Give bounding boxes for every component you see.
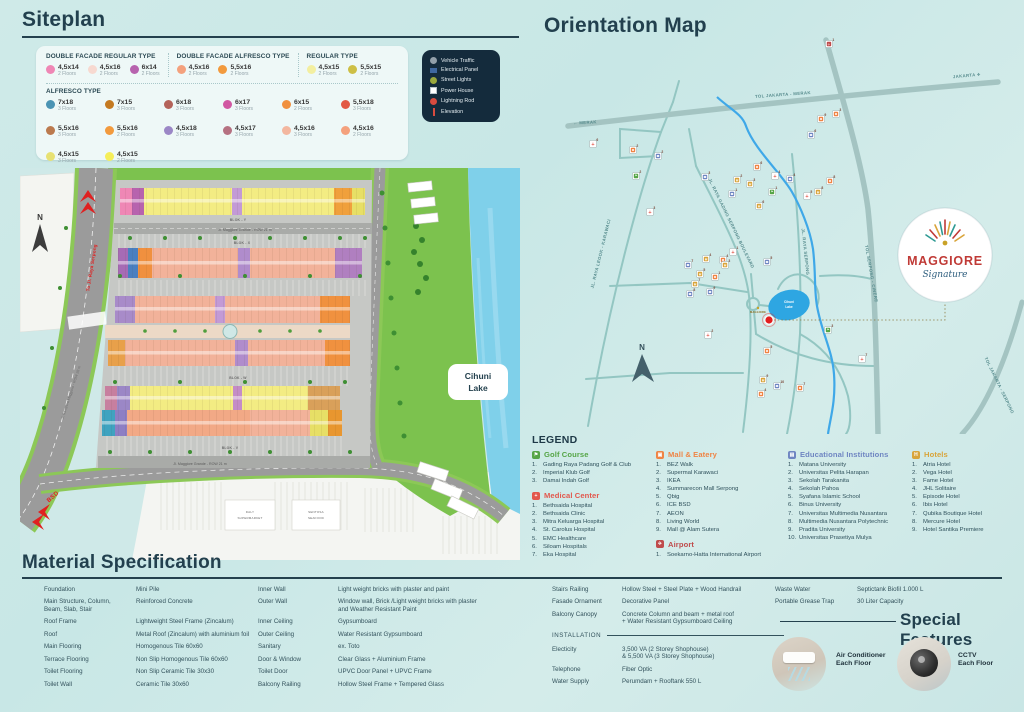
building-row-blok-w-lower <box>108 340 350 366</box>
material-row: Main FlooringHomogenous Tile 60x60 <box>44 643 256 650</box>
map-marker-medical: +7 <box>858 353 867 363</box>
education-icon: ▤ <box>788 451 796 459</box>
map-marker-hotel: H2 <box>733 174 742 184</box>
legend-item: Sekolah Pahoa <box>788 486 910 492</box>
material-col-1: FoundationMini PileMain Structure, Colum… <box>44 586 256 693</box>
type-color-dot <box>130 65 139 74</box>
blok-y-label: BLOK - Y <box>230 218 247 222</box>
material-row: Toilet DoorUPVC Door Panel + UPVC Frame <box>258 668 526 675</box>
facade-type-item: 6x142 Floors <box>130 64 160 77</box>
svg-text:1: 1 <box>775 186 777 190</box>
map-marker-edu: 2 <box>654 150 663 160</box>
siteplan-map: N <box>20 168 520 560</box>
map-marker-hotel: H4 <box>702 253 711 263</box>
siteplan-map-legend: Vehicle TrafficElectrical PanelStreet Li… <box>422 50 500 122</box>
material-row: Terrace FlooringNon Slip Homogenous Tile… <box>44 656 256 663</box>
svg-text:6: 6 <box>762 200 764 204</box>
material-row: Roof FrameLightweight Steel Frame (Zinca… <box>44 618 256 625</box>
svg-text:5: 5 <box>770 345 772 349</box>
siteplan-title: Siteplan <box>22 8 105 32</box>
facade-type-item: 7x183 Floors <box>46 99 96 112</box>
cctv-photo <box>897 637 951 691</box>
map-marker-edu: 1 <box>728 188 737 198</box>
type-color-dot <box>105 152 114 161</box>
type-color-dot <box>164 126 173 135</box>
facade-type-item: 7x153 Floors <box>105 99 155 112</box>
legend-item: Ibis Hotel <box>912 502 1022 508</box>
map-marker-mall: 6 <box>753 161 762 171</box>
map-lake-label-2: Lake <box>785 305 792 309</box>
special-rule <box>780 621 896 622</box>
legend-item: AEON <box>656 511 786 517</box>
legend-item: Siloam Hospitals <box>532 544 654 550</box>
legend-item: Atria Hotel <box>912 462 1022 468</box>
map-marker-mall: 5 <box>763 345 772 355</box>
legend-item: St. Carolus Hospital <box>532 527 654 533</box>
svg-text:5: 5 <box>810 190 812 194</box>
legend-item: Mitra Keluarga Hospital <box>532 519 654 525</box>
svg-text:2: 2 <box>711 329 713 333</box>
svg-text:7: 7 <box>865 353 867 357</box>
svg-text:5: 5 <box>770 256 772 260</box>
map-marker-medical: +3 <box>646 206 655 216</box>
svg-text:H: H <box>758 204 761 208</box>
logo-name: MAGGIORE <box>907 254 983 268</box>
roads <box>586 81 875 434</box>
svg-text:2: 2 <box>639 170 641 174</box>
legend-item: EMC Healthcare <box>532 536 654 542</box>
svg-text:H: H <box>724 263 727 267</box>
lake-label-box <box>448 364 508 400</box>
map-marker-mall: 3 <box>832 108 841 118</box>
svg-text:7: 7 <box>691 259 693 263</box>
svg-text:6: 6 <box>760 161 762 165</box>
svg-text:H: H <box>762 378 765 382</box>
svg-text:4: 4 <box>764 388 766 392</box>
map-legend-icon <box>430 87 437 94</box>
legend-item: BEZ Walk <box>656 462 786 468</box>
maggiore-logo: MAGGIORE Signature <box>898 208 992 302</box>
type-color-dot <box>348 65 357 74</box>
legend-item: Bethsaida Clinic <box>532 511 654 517</box>
legend-item: Multimedia Nusantara Polytechnic <box>788 519 910 525</box>
type-color-dot <box>105 126 114 135</box>
svg-text:1: 1 <box>832 38 834 42</box>
map-marker-hotel: H5 <box>696 268 705 278</box>
svg-text:+: + <box>648 210 651 216</box>
material-row: Inner CeilingGypsumboard <box>258 618 526 625</box>
map-legend-icon <box>433 108 435 116</box>
material-row: Main Structure, Column, Beam, Slab, Stai… <box>44 598 256 613</box>
material-row: Balcony CanopyConcrete Column and beam +… <box>552 611 794 626</box>
map-legend-row: Elevation <box>430 108 492 116</box>
type-color-dot <box>46 126 55 135</box>
type-color-dot <box>46 65 55 74</box>
map-marker-mall: 7 <box>796 382 805 392</box>
legend-item: Mall @ Alam Sutera <box>656 527 786 533</box>
type-color-dot <box>46 152 55 161</box>
installation-header: INSTALLATION <box>552 632 784 639</box>
map-marker-edu: 9 <box>706 286 715 296</box>
material-row: FoundationMini Pile <box>44 586 256 593</box>
legend-item: Binus University <box>788 502 910 508</box>
svg-text:9: 9 <box>713 286 715 290</box>
map-marker-hotel: H9 <box>759 374 768 384</box>
material-title: Material Specification <box>22 552 222 574</box>
map-marker-edu: 7 <box>684 259 693 269</box>
svg-text:3: 3 <box>753 178 755 182</box>
material-row: TelephoneFiber Optic <box>552 666 794 673</box>
svg-text:4: 4 <box>726 254 728 258</box>
material-row: Sanitaryex. Toto <box>258 643 526 650</box>
svg-text:H: H <box>699 272 702 276</box>
supermarket-label-1: DALY <box>246 510 254 514</box>
type-color-dot <box>105 100 114 109</box>
material-row: Door & WindowClear Glass + Aluminium Fra… <box>258 656 526 663</box>
type-color-dot <box>282 126 291 135</box>
poi-legend: LEGEND ⚑Golf Course Gading Raya Padang G… <box>530 434 1024 564</box>
facade-type-item: 4,5x183 Floors <box>164 125 214 138</box>
legend-item: Damai Indah Golf <box>532 478 654 484</box>
material-row: Outer WallWindow wall, Brick /Light weig… <box>258 598 526 613</box>
legend-item: Fame Hotel <box>912 478 1022 484</box>
type-color-dot <box>307 65 316 74</box>
legend-item: ICE BSD <box>656 502 786 508</box>
map-marker-golf: 3 <box>824 324 833 334</box>
svg-text:6: 6 <box>814 129 816 133</box>
legend-section-airport: ✈Airport Soekarno-Hatta International Ai… <box>656 540 786 558</box>
svg-text:9: 9 <box>824 113 826 117</box>
material-row: Toilet FlooringNon Slip Ceramic Tile 30x… <box>44 668 256 675</box>
legend-section-education: ▤Educational Institutions Matana Univers… <box>788 450 910 541</box>
logo-tagline: Signature <box>922 270 967 280</box>
facade-type-item: 6x173 Floors <box>223 99 273 112</box>
svg-text:✈: ✈ <box>828 42 831 46</box>
street-bottom-label: Jl. Maggiore Grande - ROW 21 m <box>173 462 227 466</box>
map-marker-hotel: H6 <box>755 200 764 210</box>
svg-text:H: H <box>817 190 820 194</box>
seafood-label-2: SEAFOOD <box>308 516 325 520</box>
svg-text:1: 1 <box>736 246 738 250</box>
map-marker-edu: 6 <box>807 129 816 139</box>
map-compass-n: N <box>639 343 645 352</box>
legend-item: Summarecon Mall Serpong <box>656 486 786 492</box>
map-legend-row: Power House <box>430 87 492 94</box>
svg-text:8: 8 <box>833 175 835 179</box>
facade-group-title: DOUBLE FACADE ALFRESCO TYPE <box>177 53 290 60</box>
medical-icon: + <box>532 492 540 500</box>
svg-text:2: 2 <box>740 174 742 178</box>
legend-item: Supermal Karawaci <box>656 470 786 476</box>
legend-item: Vega Hotel <box>912 470 1022 476</box>
svg-text:+: + <box>706 333 709 339</box>
legend-item: Living World <box>656 519 786 525</box>
svg-text:H: H <box>694 282 697 286</box>
site-marker <box>765 316 773 324</box>
facade-type-item: 4,5x162 Floors <box>177 64 210 77</box>
road-label: JL. RAYA LEGOK - KARAWACI <box>590 219 612 289</box>
svg-text:7: 7 <box>698 278 700 282</box>
svg-text:1: 1 <box>735 188 737 192</box>
facade-group-title: DOUBLE FACADE REGULAR TYPE <box>46 53 160 60</box>
blok-w-label: BLOK - W <box>229 376 247 380</box>
legend-item: Hotel Santika Premiere <box>912 527 1022 533</box>
map-marker-hotel: H7 <box>691 278 700 288</box>
facade-type-item: 4,5x162 Floors <box>341 125 391 138</box>
ac-label: Air Conditioner Each Floor <box>836 652 885 669</box>
material-row: Fasade OrnamentDecorative Panel <box>552 598 794 605</box>
svg-text:+: + <box>860 357 863 363</box>
street-top-label: Jl. Maggiore Grande - ROW 21 m <box>218 228 272 232</box>
map-compass-arrow <box>632 354 654 382</box>
legend-item: IKEA <box>656 478 786 484</box>
type-color-dot <box>341 100 350 109</box>
legend-item: Soekarno-Hatta International Airport <box>656 552 786 558</box>
svg-text:+: + <box>731 250 734 256</box>
material-col-3b: Electicity3,500 VA (2 Storey Shophouse) … <box>552 646 794 691</box>
ac-photo <box>772 637 826 691</box>
material-row: Toilet WallCeramic Tile 30x60 <box>44 681 256 688</box>
type-color-dot <box>282 100 291 109</box>
type-color-dot <box>46 100 55 109</box>
type-color-dot <box>88 65 97 74</box>
legend-item: Qbig <box>656 494 786 500</box>
svg-text:8: 8 <box>821 186 823 190</box>
svg-text:1: 1 <box>718 271 720 275</box>
legend-item: Syafana Islamic School <box>788 494 910 500</box>
lake-label-2: Lake <box>468 383 488 393</box>
legend-item: Pradita University <box>788 527 910 533</box>
svg-text:10: 10 <box>780 380 784 384</box>
svg-text:8: 8 <box>693 288 695 292</box>
hotel-icon: H <box>912 451 920 459</box>
facade-type-item: 5,5x183 Floors <box>341 99 391 112</box>
map-marker-golf: 2 <box>632 170 641 180</box>
divider <box>298 53 299 77</box>
supermarket-label-2: SUPERMARKET <box>237 516 262 520</box>
svg-text:4: 4 <box>709 253 711 257</box>
divider <box>46 83 398 84</box>
svg-text:+: + <box>591 142 594 148</box>
siteplan-compass-n: N <box>37 213 43 222</box>
site-mini-crest <box>757 307 759 309</box>
facade-type-item: 4,5x163 Floors <box>282 125 332 138</box>
legend-item: Bethsaida Hospital <box>532 503 654 509</box>
map-legend-icon <box>430 98 437 105</box>
material-title-rule <box>22 577 1002 579</box>
material-row: Electicity3,500 VA (2 Storey Shophouse) … <box>552 646 794 661</box>
legend-item: Universitas Multimedia Nusantara <box>788 511 910 517</box>
map-marker-mall: 1 <box>711 271 720 281</box>
svg-text:7: 7 <box>803 382 805 386</box>
legend-item: Universitas Prasetiya Mulya <box>788 535 910 541</box>
blok-v-label: BLOK - V <box>222 446 239 450</box>
facade-type-item: 5,5x152 Floors <box>348 64 381 77</box>
svg-text:H: H <box>705 257 708 261</box>
facade-type-item: 4,5x152 Floors <box>307 64 340 77</box>
svg-text:6: 6 <box>596 138 598 142</box>
legend-item: Gading Raya Padang Golf & Club <box>532 462 654 468</box>
svg-text:3: 3 <box>831 324 833 328</box>
material-row: Outer CeilingWater Resistant Gypsumboard <box>258 631 526 638</box>
legend-item: JHL Solitaire <box>912 486 1022 492</box>
legend-item: Sekolah Tarakanita <box>788 478 910 484</box>
building-row-blok-v-lower <box>102 410 342 436</box>
map-marker-hotel: H3 <box>746 178 755 188</box>
type-color-dot <box>223 100 232 109</box>
map-marker-hotel: H8 <box>814 186 823 196</box>
map-legend-row: Street Lights <box>430 77 492 84</box>
svg-text:4: 4 <box>793 173 795 177</box>
map-legend-icon <box>430 68 437 73</box>
map-marker-golf: 1 <box>768 186 777 196</box>
orientation-map: Cihuni Lake MAGGIORE N TOL JAKARTA - MER… <box>530 34 1024 434</box>
material-row: Portable Grease Trap30 Liter Capacity <box>775 598 1015 605</box>
material-row: Water SupplyPerumdam + Rooftank 550 L <box>552 678 794 685</box>
legend-section-medical: +Medical Center Bethsaida HospitalBethsa… <box>532 491 654 558</box>
golf-icon: ⚑ <box>532 451 540 459</box>
road-label: JAKARTA ✈ <box>953 72 981 79</box>
legend-item: Eka Hospital <box>532 552 654 558</box>
legend-section-golf: ⚑Golf Course Gading Raya Padang Golf & C… <box>532 450 654 484</box>
svg-text:+: + <box>773 174 776 180</box>
type-color-dot <box>341 126 350 135</box>
facade-type-item: 6x152 Floors <box>282 99 332 112</box>
map-marker-edu: 10 <box>773 380 784 390</box>
facade-type-item: 5,5x163 Floors <box>46 125 96 138</box>
building-row-blok-w-upper <box>115 296 350 323</box>
map-legend-row: Electrical Panel <box>430 67 492 73</box>
map-marker-mall: 9 <box>817 113 826 123</box>
facade-type-item: 4,5x162 Floors <box>88 64 121 77</box>
facade-group-title: REGULAR TYPE <box>307 53 382 60</box>
siteplan-title-rule <box>22 36 519 38</box>
map-marker-edu: 5 <box>763 256 772 266</box>
facade-group-double-alfresco: DOUBLE FACADE ALFRESCO TYPE 4,5x162 Floo… <box>177 53 298 77</box>
material-row: Balcony RailingHollow Steel Frame + Temp… <box>258 681 526 688</box>
legend-section-hotels: HHotels Atria HotelVega HotelFame HotelJ… <box>912 450 1022 533</box>
map-marker-edu: 8 <box>686 288 695 298</box>
seafood-label-1: SENTOSA <box>308 510 324 514</box>
svg-text:H: H <box>749 182 752 186</box>
legend-section-mall: ▣Mall & Eatery BEZ WalkSupermal Karawaci… <box>656 450 786 533</box>
divider <box>168 53 169 77</box>
map-marker-mall: 8 <box>826 175 835 185</box>
material-col-3a: Stairs RailingHollow Steel + Steel Plate… <box>552 586 794 631</box>
svg-text:3: 3 <box>708 171 710 175</box>
facade-type-item: 4,5x152 Floors <box>105 151 155 164</box>
legend-item: Episode Hotel <box>912 494 1022 500</box>
facade-group-regular: REGULAR TYPE 4,5x152 Floors5,5x152 Floor… <box>307 53 390 77</box>
material-row: Stairs RailingHollow Steel + Steel Plate… <box>552 586 794 593</box>
svg-text:3: 3 <box>728 259 730 263</box>
svg-text:9: 9 <box>766 374 768 378</box>
site-mini-label: MAGGIORE <box>750 310 766 314</box>
facade-group-double-regular: DOUBLE FACADE REGULAR TYPE 4,5x142 Floor… <box>46 53 168 77</box>
mall-icon: ▣ <box>656 451 664 459</box>
legend-item: Matana University <box>788 462 910 468</box>
material-row: Waste WaterSeptictank Biofil 1.000 L <box>775 586 1015 593</box>
material-row: RoofMetal Roof (Zincalum) with aluminium… <box>44 631 256 638</box>
material-col-4: Waste WaterSeptictank Biofil 1.000 LPort… <box>775 586 1015 611</box>
svg-text:2: 2 <box>661 150 663 154</box>
type-color-dot <box>177 65 186 74</box>
svg-text:H: H <box>736 178 739 182</box>
map-marker-medical: +2 <box>704 329 713 339</box>
svg-text:2: 2 <box>636 144 638 148</box>
facade-type-item: 5,5x162 Floors <box>218 64 251 77</box>
building-row-blok-y <box>120 188 365 215</box>
building-row-blok-v-upper <box>105 386 340 410</box>
facade-type-item: 4,5x173 Floors <box>223 125 273 138</box>
map-lake-label-1: Cihuni <box>784 300 794 304</box>
map-legend-icon <box>430 57 437 64</box>
type-color-dot <box>218 65 227 74</box>
facade-type-item: 4,5x153 Floors <box>46 151 96 164</box>
legend-item: Mercure Hotel <box>912 519 1022 525</box>
svg-text:5: 5 <box>703 268 705 272</box>
material-col-2: Inner WallLight weight bricks with plast… <box>258 586 526 693</box>
map-legend-icon <box>430 77 437 84</box>
type-color-dot <box>164 100 173 109</box>
building-row-blok-x <box>118 248 362 278</box>
legend-item: Imperial Klub Golf <box>532 470 654 476</box>
facade-type-item: 6x183 Floors <box>164 99 214 112</box>
svg-text:3: 3 <box>653 206 655 210</box>
poi-legend-title: LEGEND <box>532 434 578 446</box>
map-marker-mall: 4 <box>757 388 766 398</box>
map-legend-row: Vehicle Traffic <box>430 57 492 64</box>
legend-item: Qubika Boutique Hotel <box>912 511 1022 517</box>
map-marker-medical: +5 <box>803 190 812 200</box>
facade-type-legend-card: DOUBLE FACADE REGULAR TYPE 4,5x142 Floor… <box>36 46 408 160</box>
blok-x-label: BLOK - X <box>234 241 251 245</box>
map-marker-medical: +6 <box>589 138 598 148</box>
facade-type-item: 4,5x142 Floors <box>46 64 79 77</box>
map-legend-row: Lightning Rod <box>430 98 492 105</box>
type-color-dot <box>223 126 232 135</box>
cctv-label: CCTV Each Floor <box>958 652 993 669</box>
svg-text:+: + <box>805 194 808 200</box>
legend-item: Universitas Pelita Harapan <box>788 470 910 476</box>
alfresco-group-title: ALFRESCO TYPE <box>46 88 398 95</box>
facade-type-item: 5,5x162 Floors <box>105 125 155 138</box>
lake-label-1: Cihuni <box>465 371 491 381</box>
map-marker-mall: 2 <box>629 144 638 154</box>
airport-icon: ✈ <box>656 540 664 548</box>
svg-text:4: 4 <box>778 170 780 174</box>
svg-text:3: 3 <box>839 108 841 112</box>
material-row: Inner WallLight weight bricks with plast… <box>258 586 526 593</box>
